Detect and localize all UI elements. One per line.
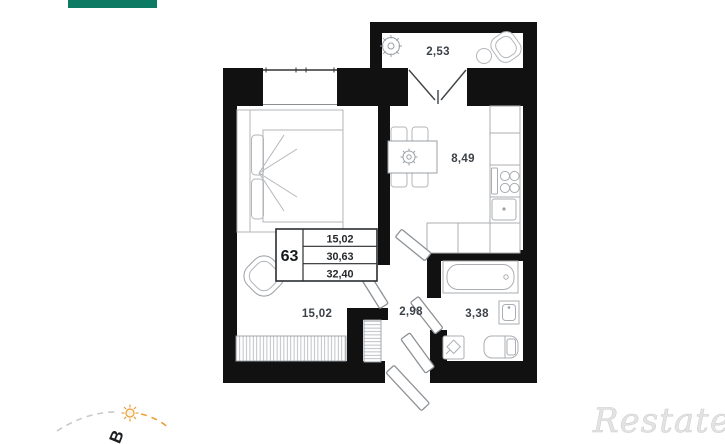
room-label-kitchen: 8,49 [451, 153, 475, 165]
wall-living-kitchen [378, 106, 390, 265]
apartment-number: 63 [281, 248, 299, 265]
wall-bottom-left [223, 361, 385, 383]
wall-hall-corner-v [347, 318, 363, 364]
wall-balcony-left [370, 22, 382, 68]
room-label-hall: 2,98 [399, 306, 423, 318]
watermark-logo: Restate [592, 401, 725, 441]
bathtub [443, 261, 518, 293]
dining-set [388, 127, 437, 187]
balcony-stool [477, 49, 492, 64]
wardrobe-bottom [236, 336, 346, 361]
chair [391, 127, 407, 142]
washing-machine-icon [484, 336, 518, 358]
wall-balcony-right [523, 22, 537, 68]
compass: В [57, 405, 170, 444]
room-label-living: 15,02 [302, 308, 332, 320]
accent-bar[interactable] [68, 0, 157, 8]
chair [412, 172, 428, 187]
stamp-area-full: 32,40 [326, 268, 353, 280]
apartment-stamp: 63 15,02 30,63 32,40 [276, 229, 377, 281]
stamp-area-total: 30,63 [326, 251, 353, 263]
door-leaf-hall [401, 333, 435, 373]
window-living-room [263, 68, 337, 105]
room-label-balcony: 2,53 [426, 46, 450, 58]
compass-direction-label: В [106, 427, 128, 444]
wall-left [223, 68, 237, 383]
door-leaf-entrance [386, 365, 430, 411]
floorplan-page: 2,53 8,49 15,02 2,98 3,38 63 15,02 30,63… [0, 0, 725, 444]
balcony-chaise [487, 28, 524, 66]
stamp-area-living: 15,02 [326, 234, 353, 246]
balcony-door [409, 70, 466, 104]
wall-balcony-top [370, 22, 537, 33]
wardrobe-side [364, 320, 381, 362]
wall-bathroom-left-upper [427, 261, 441, 298]
bathroom-sink-icon [499, 301, 519, 324]
pillow [252, 179, 264, 219]
wall-right [523, 68, 537, 383]
kitchen-counter [427, 106, 520, 253]
toilet-icon [443, 336, 464, 359]
chair [391, 172, 407, 187]
sun-path-arc-orange [141, 414, 170, 429]
wall-top-right [467, 68, 523, 106]
chair [412, 127, 428, 142]
door-leaf-kitchen [395, 229, 431, 261]
wall-top-middle [337, 68, 408, 106]
room-label-bathroom: 3,38 [465, 308, 489, 320]
sun-icon [122, 405, 139, 422]
balcony-plant-icon [380, 35, 402, 57]
dining-table [388, 141, 437, 173]
floorplan-drawing: 2,53 8,49 15,02 2,98 3,38 63 15,02 30,63… [0, 0, 725, 444]
bed [237, 110, 343, 232]
